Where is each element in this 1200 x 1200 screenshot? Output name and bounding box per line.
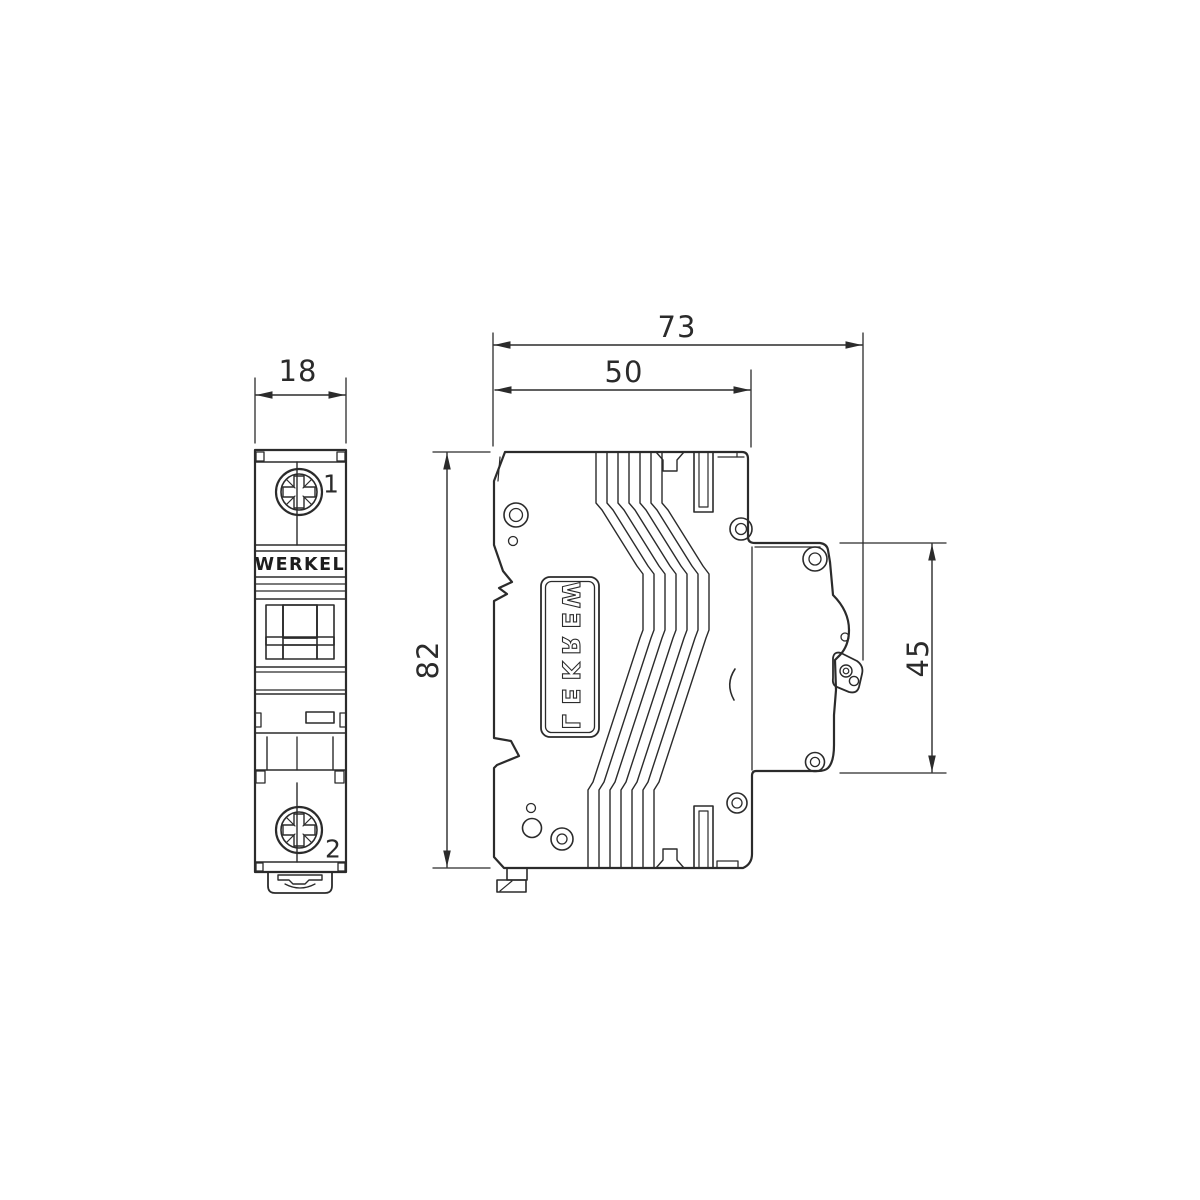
side-brand-label: W E R K E L: [541, 577, 599, 737]
side-brand-letter: E: [557, 688, 585, 704]
side-brand-letter: L: [557, 714, 585, 729]
molding-lines: [588, 452, 709, 868]
spring-curve-mark: [730, 669, 735, 700]
rivets: [727, 518, 827, 813]
terminal-screw-1: [276, 469, 322, 515]
dimension-label-45: 45: [901, 639, 935, 678]
terminal-number-1: 1: [323, 470, 339, 499]
dim-total-depth: 73: [493, 310, 863, 660]
terminal-screw-2: [276, 807, 322, 853]
dimension-label-82: 82: [411, 641, 445, 680]
dimension-label-50: 50: [605, 355, 644, 389]
front-body-outline: [255, 450, 346, 872]
side-view: W E R K E L 73 50 82: [411, 310, 946, 892]
front-brand-plate: WERKEL: [255, 555, 346, 599]
front-din-clip: [268, 872, 332, 893]
front-middle-panel: [255, 690, 346, 783]
side-edge-details: [498, 452, 820, 770]
edge-slots: [656, 452, 738, 868]
marking-window: [306, 712, 334, 723]
dimension-label-73: 73: [658, 310, 697, 344]
side-brand-letter: R: [557, 637, 585, 655]
drawing-canvas: 1 WERKEL: [0, 0, 1200, 1200]
dim-body-depth: 50: [495, 355, 751, 447]
dim-din-height: 45: [840, 543, 946, 773]
mounting-holes-top: [504, 503, 528, 546]
brand-label-front: WERKEL: [255, 555, 345, 575]
front-view: 1 WERKEL: [255, 354, 346, 893]
dimension-label-18: 18: [279, 354, 318, 388]
dim-height: 82: [411, 452, 490, 868]
mounting-holes-bottom: [523, 804, 574, 851]
side-bottom-tab: [497, 868, 527, 892]
dim-front-width: 18: [255, 354, 346, 443]
technical-drawing: 1 WERKEL: [0, 0, 1200, 1200]
front-terminal-top: 1: [255, 462, 346, 551]
terminal-number-2: 2: [325, 835, 341, 864]
toggle-handle: [283, 605, 317, 638]
side-brand-letter: E: [557, 612, 585, 628]
front-toggle-switch: [255, 605, 346, 672]
front-terminal-bottom: 2: [255, 783, 346, 871]
side-brand-letter: K: [557, 661, 585, 681]
front-top-strip: [255, 452, 346, 462]
side-brand-letter: W: [557, 582, 585, 608]
